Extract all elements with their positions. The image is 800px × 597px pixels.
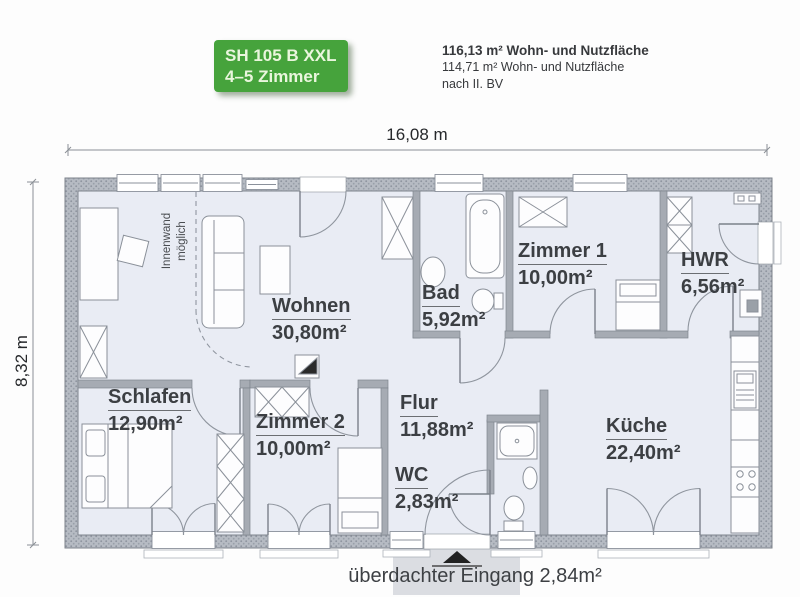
room-label-kueche: Küche 22,40m² xyxy=(606,413,681,466)
room-label-bad: Bad 5,92m² xyxy=(422,280,485,333)
inner-wall-note-line1: Innenwand xyxy=(160,185,175,297)
height-dimension-label: 8,32 m xyxy=(12,313,32,409)
room-area: 12,90m² xyxy=(108,411,191,437)
width-dimension-label: 16,08 m xyxy=(386,125,447,145)
kitchen-counter-icon xyxy=(731,336,759,533)
room-label-zimmer1: Zimmer 1 10,00m² xyxy=(518,238,607,291)
room-name: Schlafen xyxy=(108,384,191,411)
room-name: HWR xyxy=(681,247,729,274)
area-info-line3: nach II. BV xyxy=(442,76,649,93)
room-name: Flur xyxy=(400,390,438,417)
badge-rooms: 4–5 Zimmer xyxy=(225,66,348,87)
sink-icon xyxy=(523,467,537,489)
room-area: 10,00m² xyxy=(518,265,607,291)
room-area: 6,56m² xyxy=(681,274,744,300)
area-info: 116,13 m² Wohn- und Nutzfläche 114,71 m²… xyxy=(442,42,649,93)
room-area: 2,83m² xyxy=(395,489,458,515)
wardrobe-icon xyxy=(519,197,567,227)
room-label-flur: Flur 11,88m² xyxy=(400,390,473,443)
room-name: Wohnen xyxy=(272,293,351,320)
inner-wall-note: Innenwand möglich xyxy=(160,185,192,297)
room-area: 11,88m² xyxy=(400,417,473,443)
room-label-wc: WC 2,83m² xyxy=(395,462,458,515)
coffee-table-icon xyxy=(260,246,290,294)
wardrobe-icon xyxy=(382,197,413,259)
wardrobe-icon xyxy=(217,434,244,532)
room-area: 22,40m² xyxy=(606,440,681,466)
inner-wall-note-line2: möglich xyxy=(175,185,190,297)
wardrobe-icon xyxy=(80,326,107,378)
toilet-icon xyxy=(504,496,524,531)
room-label-hwr: HWR 6,56m² xyxy=(681,247,744,300)
room-area: 5,92m² xyxy=(422,307,485,333)
shelf-icon xyxy=(667,197,692,253)
appliance-icon xyxy=(734,193,761,204)
entrance-label: überdachter Eingang 2,84m² xyxy=(348,565,602,588)
room-label-schlafen: Schlafen 12,90m² xyxy=(108,384,191,437)
room-area: 10,00m² xyxy=(256,436,345,462)
bathtub-icon xyxy=(466,194,504,278)
room-name: Zimmer 1 xyxy=(518,238,607,265)
sofa-icon xyxy=(202,216,244,328)
plan-badge: SH 105 B XXL 4–5 Zimmer xyxy=(214,40,348,92)
room-name: Bad xyxy=(422,280,460,307)
room-name: Zimmer 2 xyxy=(256,409,345,436)
room-name: Küche xyxy=(606,413,667,440)
floorplan-page: SH 105 B XXL 4–5 Zimmer 116,13 m² Wohn- … xyxy=(0,0,800,597)
area-info-line1: 116,13 m² Wohn- und Nutzfläche xyxy=(442,42,649,59)
room-label-zimmer2: Zimmer 2 10,00m² xyxy=(256,409,345,462)
room-area: 30,80m² xyxy=(272,320,351,346)
chimney-icon xyxy=(295,355,319,378)
room-label-wohnen: Wohnen 30,80m² xyxy=(272,293,351,346)
shower-icon xyxy=(497,423,537,459)
badge-model: SH 105 B XXL xyxy=(225,45,348,66)
area-info-line2: 114,71 m² Wohn- und Nutzfläche xyxy=(442,59,649,76)
bed-icon xyxy=(616,280,660,330)
room-name: WC xyxy=(395,462,428,489)
